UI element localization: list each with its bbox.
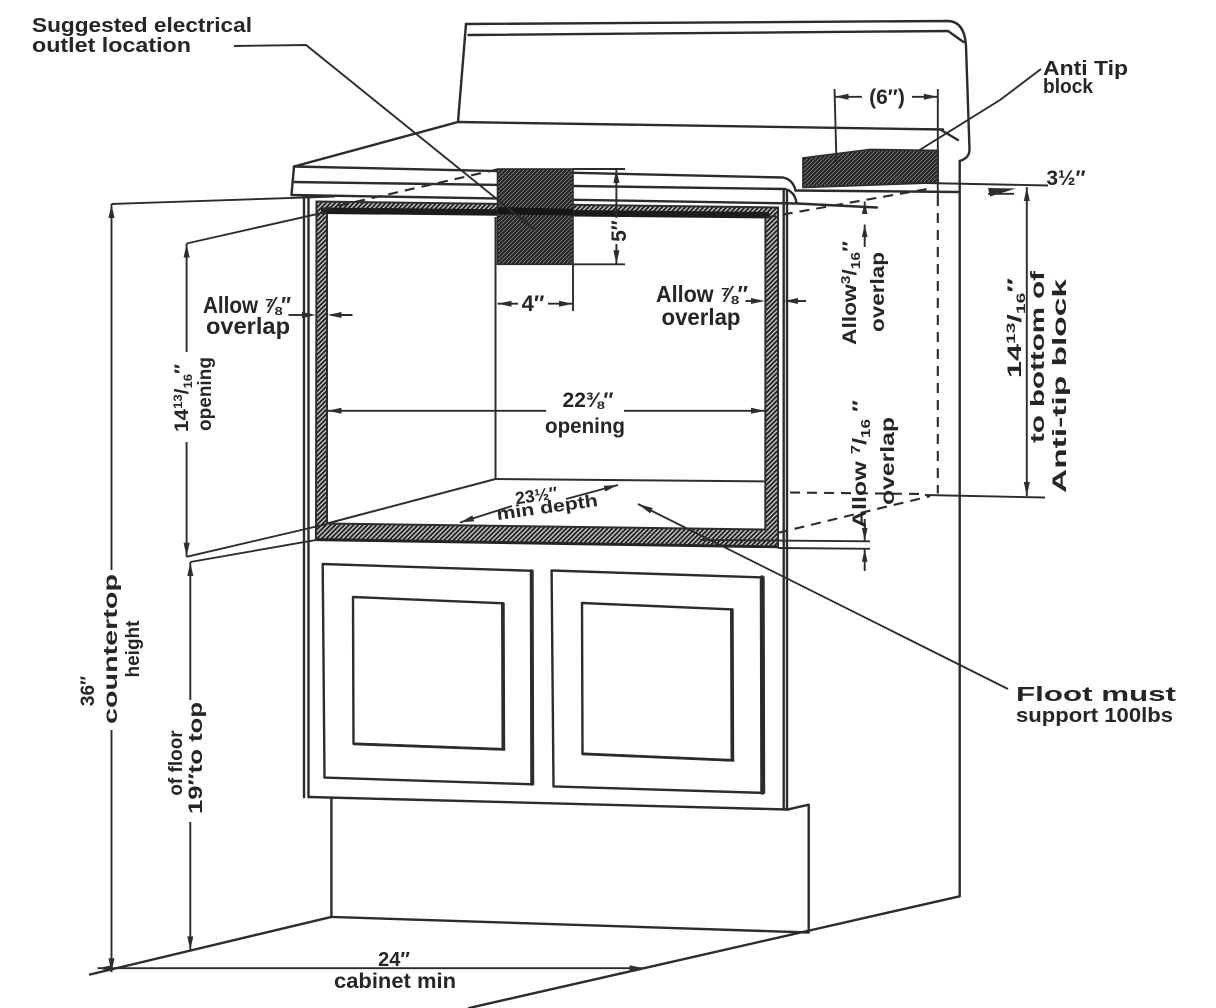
svg-text:opening: opening [195,357,216,431]
svg-text:1413/16″: 1413/16″ [171,364,195,432]
svg-text:support 100lbs: support 100lbs [1016,705,1173,727]
svg-text:cabinet min: cabinet min [334,970,456,993]
svg-text:(6″): (6″) [869,86,905,109]
svg-text:overlap: overlap [662,304,741,330]
svg-text:overlap: overlap [206,313,290,339]
svg-text:height: height [123,620,144,678]
svg-text:outlet location: outlet location [32,35,191,57]
svg-text:19″to top: 19″to top [186,702,207,814]
svg-text:countertop: countertop [101,574,122,724]
svg-text:of floor: of floor [166,730,187,796]
svg-text:3½″: 3½″ [1046,167,1085,190]
svg-text:overlap: overlap [868,252,889,332]
svg-text:1413/16″: 1413/16″ [1004,278,1028,378]
svg-text:24″: 24″ [378,949,410,971]
svg-text:4″: 4″ [522,291,545,316]
svg-text:to bottom of: to bottom of [1028,270,1049,443]
svg-text:5″: 5″ [608,220,631,242]
svg-text:Anti-tip block: Anti-tip block [1050,278,1071,493]
svg-text:Floot must: Floot must [1016,684,1177,706]
svg-text:Suggested electrical: Suggested electrical [32,15,252,37]
svg-text:Allow3/16″: Allow3/16″ [838,241,863,345]
svg-text:36″: 36″ [78,676,99,706]
svg-text:opening: opening [545,415,625,438]
svg-text:block: block [1043,76,1094,98]
svg-text:22⅜″: 22⅜″ [563,389,614,412]
svg-text:Allow 7/16 ″: Allow 7/16 ″ [848,400,873,528]
svg-text:overlap: overlap [878,417,899,505]
